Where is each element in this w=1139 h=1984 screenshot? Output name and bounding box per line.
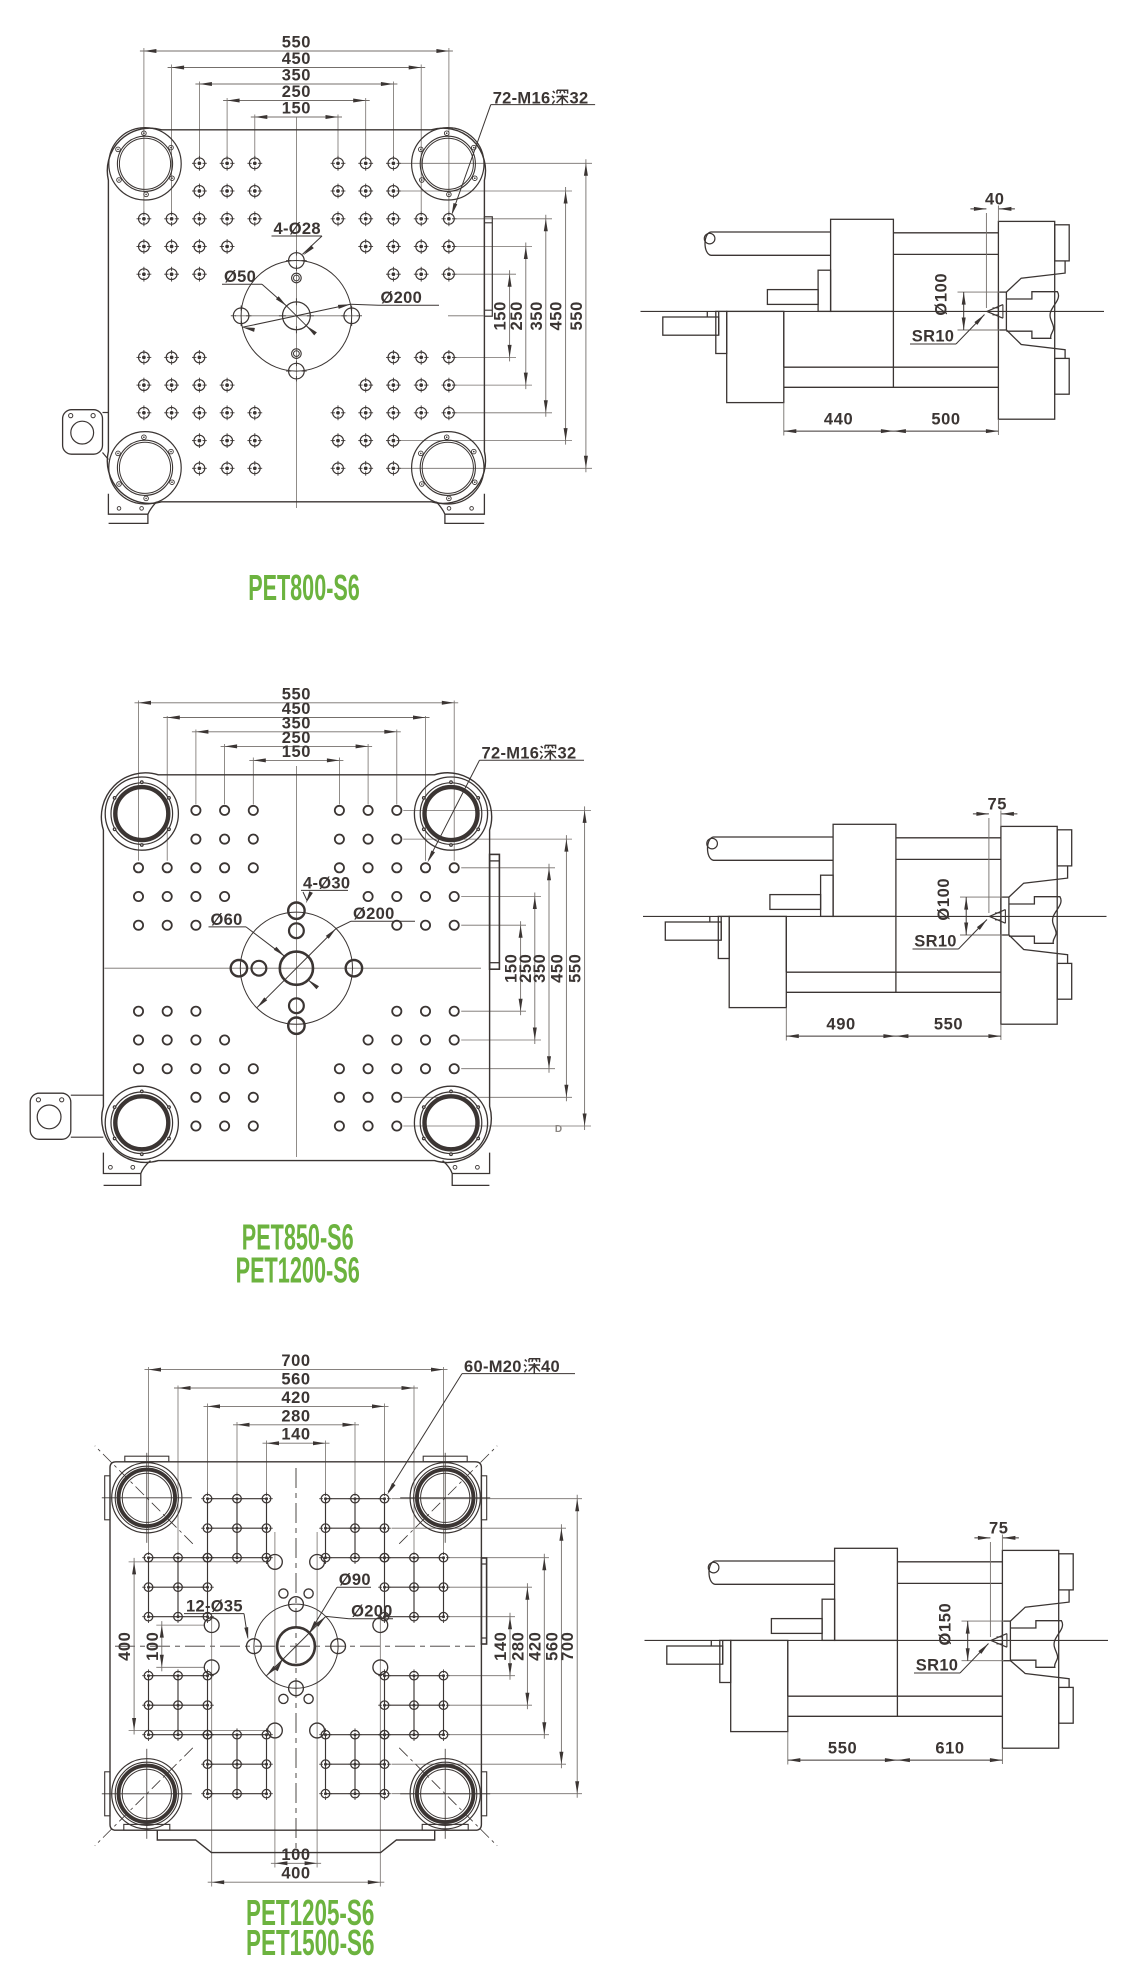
svg-text:Ø150: Ø150 xyxy=(937,1603,955,1646)
svg-text:490: 490 xyxy=(826,1016,855,1034)
svg-text:280: 280 xyxy=(509,1632,527,1661)
svg-text:550: 550 xyxy=(282,34,311,52)
svg-text:250: 250 xyxy=(508,301,526,330)
svg-text:350: 350 xyxy=(282,67,311,85)
svg-text:350: 350 xyxy=(531,954,549,983)
svg-text:PET1200-S6: PET1200-S6 xyxy=(236,1250,360,1291)
svg-text:400: 400 xyxy=(281,1865,310,1883)
svg-text:100: 100 xyxy=(144,1632,162,1661)
svg-text:D: D xyxy=(555,1124,562,1135)
svg-text:140: 140 xyxy=(492,1632,510,1661)
svg-text:700: 700 xyxy=(559,1632,577,1661)
svg-text:Ø90: Ø90 xyxy=(339,1571,371,1589)
svg-text:150: 150 xyxy=(282,743,311,761)
svg-text:Ø60: Ø60 xyxy=(211,911,243,929)
svg-text:550: 550 xyxy=(828,1740,857,1758)
svg-text:75: 75 xyxy=(989,1519,1009,1537)
svg-text:75: 75 xyxy=(988,795,1008,813)
svg-text:SR10: SR10 xyxy=(916,1657,958,1675)
svg-text:4-Ø28: 4-Ø28 xyxy=(274,220,321,238)
svg-text:Ø200: Ø200 xyxy=(381,289,423,307)
svg-text:40: 40 xyxy=(985,190,1005,208)
svg-text:420: 420 xyxy=(526,1632,544,1661)
svg-text:700: 700 xyxy=(281,1352,310,1370)
svg-text:Ø100: Ø100 xyxy=(935,878,953,921)
svg-text:250: 250 xyxy=(282,83,311,101)
svg-text:SR10: SR10 xyxy=(912,328,954,346)
svg-text:150: 150 xyxy=(282,100,311,118)
svg-text:Ø100: Ø100 xyxy=(933,273,951,316)
svg-text:4-Ø30: 4-Ø30 xyxy=(303,875,350,893)
svg-text:440: 440 xyxy=(824,411,853,429)
svg-text:PET800-S6: PET800-S6 xyxy=(248,567,360,608)
svg-text:450: 450 xyxy=(548,301,566,330)
svg-text:100: 100 xyxy=(281,1846,310,1864)
svg-text:350: 350 xyxy=(528,301,546,330)
svg-text:500: 500 xyxy=(931,411,960,429)
svg-text:Ø50: Ø50 xyxy=(224,268,256,286)
svg-text:280: 280 xyxy=(281,1407,310,1425)
svg-text:Ø200: Ø200 xyxy=(351,1603,393,1621)
svg-text:610: 610 xyxy=(935,1740,964,1758)
svg-text:550: 550 xyxy=(568,301,586,330)
svg-text:420: 420 xyxy=(281,1389,310,1407)
svg-text:PET1500-S6: PET1500-S6 xyxy=(246,1922,375,1963)
svg-text:12-Ø35: 12-Ø35 xyxy=(186,1598,243,1616)
svg-text:140: 140 xyxy=(281,1426,310,1444)
svg-text:450: 450 xyxy=(548,954,566,983)
svg-text:450: 450 xyxy=(282,50,311,68)
svg-text:400: 400 xyxy=(116,1632,134,1661)
svg-text:SR10: SR10 xyxy=(914,933,956,951)
svg-text:550: 550 xyxy=(567,954,585,983)
svg-text:550: 550 xyxy=(934,1016,963,1034)
svg-text:Ø200: Ø200 xyxy=(353,905,395,923)
svg-text:560: 560 xyxy=(281,1371,310,1389)
